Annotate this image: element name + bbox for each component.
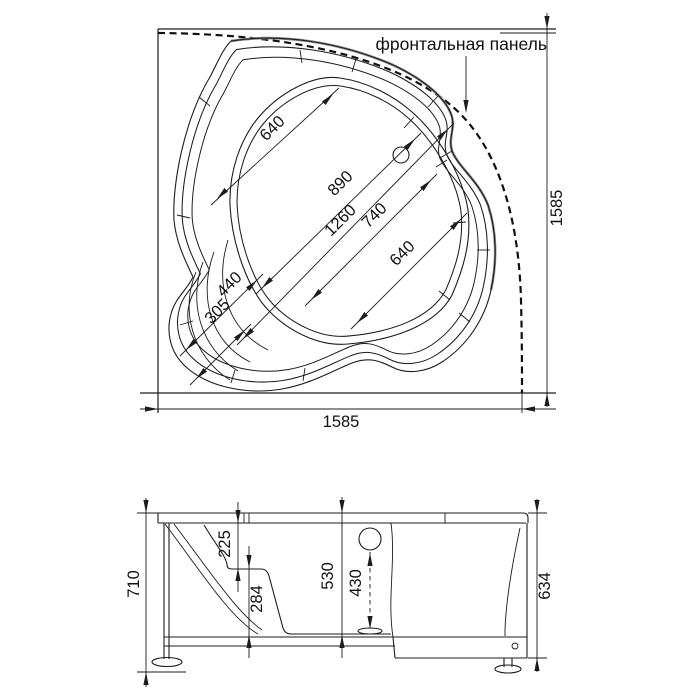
panel-edge-thick-line (231, 38, 495, 290)
elev-panel-clip (512, 643, 518, 649)
elev-left-leg (164, 523, 169, 659)
elev-apron-strip (393, 637, 527, 658)
drawing-canvas: 640 890 1260 740 640 440 305 1585 1585 ф… (0, 0, 700, 700)
plan-view: 640 890 1260 740 640 440 305 1585 1585 ф… (140, 13, 566, 431)
plan-dim-overall-height: 1585 (548, 190, 566, 227)
elevation-view: 710 225 284 530 430 634 (125, 497, 554, 687)
elev-dim-rim-to-seat: 225 (216, 530, 234, 558)
elev-dim-seat-to-bottom: 284 (248, 585, 266, 613)
plan-dim-overall-width: 1585 (323, 413, 360, 431)
front-panel-label: фронтальная панель (376, 34, 548, 54)
plan-dim-bowl-se-width: 640 (386, 237, 418, 269)
plan-dim-bowl-mid-width: 890 (324, 167, 356, 199)
plan-dim-inner-length: 1260 (321, 201, 360, 240)
elev-shell-outer-slope (165, 524, 258, 634)
elev-dim-inner-depth: 530 (319, 562, 337, 590)
elev-rim-ticks (244, 513, 445, 523)
elev-overflow-hole (359, 528, 381, 550)
elev-dim-overflow-to-drain: 430 (347, 569, 365, 597)
bathtub-technical-drawing: 640 890 1260 740 640 440 305 1585 1585 ф… (0, 0, 700, 700)
plan-dim-seat-inner-width: 305 (201, 295, 233, 327)
elev-left-foot (152, 658, 182, 667)
elev-rim-top (158, 513, 528, 523)
plan-dim-bowl-lower-width: 740 (358, 199, 390, 231)
elev-dim-total-height: 710 (125, 570, 143, 598)
elev-right-foot (495, 665, 521, 673)
elev-frame-rails (164, 637, 395, 646)
overflow-hole-icon (393, 147, 409, 163)
elev-dim-panel-height: 634 (536, 572, 554, 600)
elev-panel-corner-curve (505, 528, 520, 636)
elev-right-foot-stem (504, 658, 512, 667)
plan-dim-bowl-upper-width: 640 (256, 112, 288, 144)
elev-break-line (391, 523, 393, 637)
tub-outer-rim (169, 38, 495, 391)
